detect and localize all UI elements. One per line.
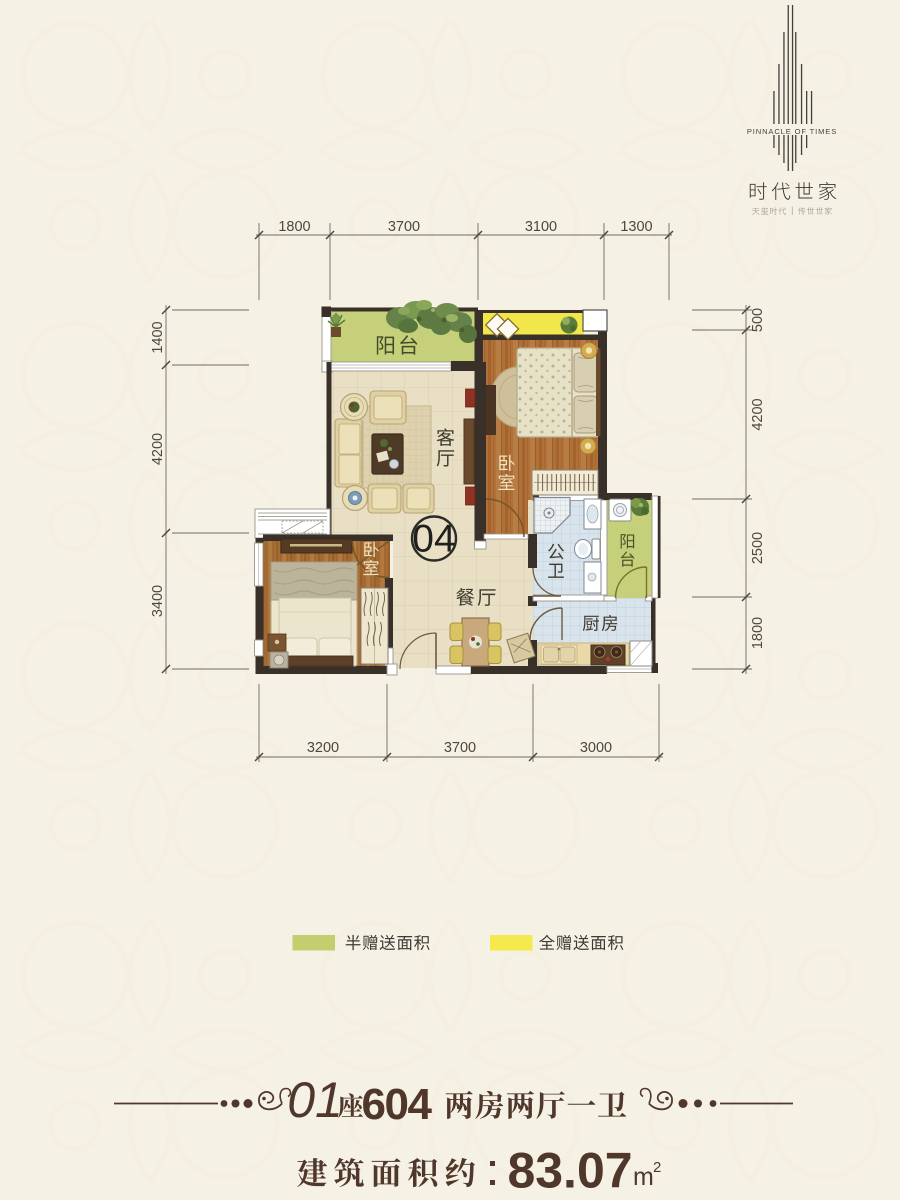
svg-text:3000: 3000	[580, 740, 612, 756]
svg-text:500: 500	[750, 308, 766, 332]
svg-text:1400: 1400	[150, 321, 166, 353]
svg-text:3200: 3200	[307, 740, 339, 756]
svg-text:604: 604	[362, 1080, 433, 1129]
svg-text:2500: 2500	[750, 532, 766, 564]
svg-text:01: 01	[287, 1072, 343, 1128]
svg-text:2: 2	[653, 1159, 661, 1176]
svg-text:04: 04	[412, 518, 455, 561]
svg-text:3400: 3400	[150, 585, 166, 617]
svg-text:1300: 1300	[620, 219, 652, 235]
svg-text:3700: 3700	[388, 219, 420, 235]
svg-text:83.07: 83.07	[507, 1143, 632, 1199]
svg-text:m: m	[633, 1163, 654, 1191]
svg-text:3700: 3700	[444, 740, 476, 756]
svg-text:1800: 1800	[278, 219, 310, 235]
svg-text:PINNACLE OF TIMES: PINNACLE OF TIMES	[747, 127, 837, 136]
svg-text:3100: 3100	[525, 219, 557, 235]
svg-text:4200: 4200	[750, 398, 766, 430]
svg-text:4200: 4200	[150, 433, 166, 465]
svg-text:1800: 1800	[750, 617, 766, 649]
